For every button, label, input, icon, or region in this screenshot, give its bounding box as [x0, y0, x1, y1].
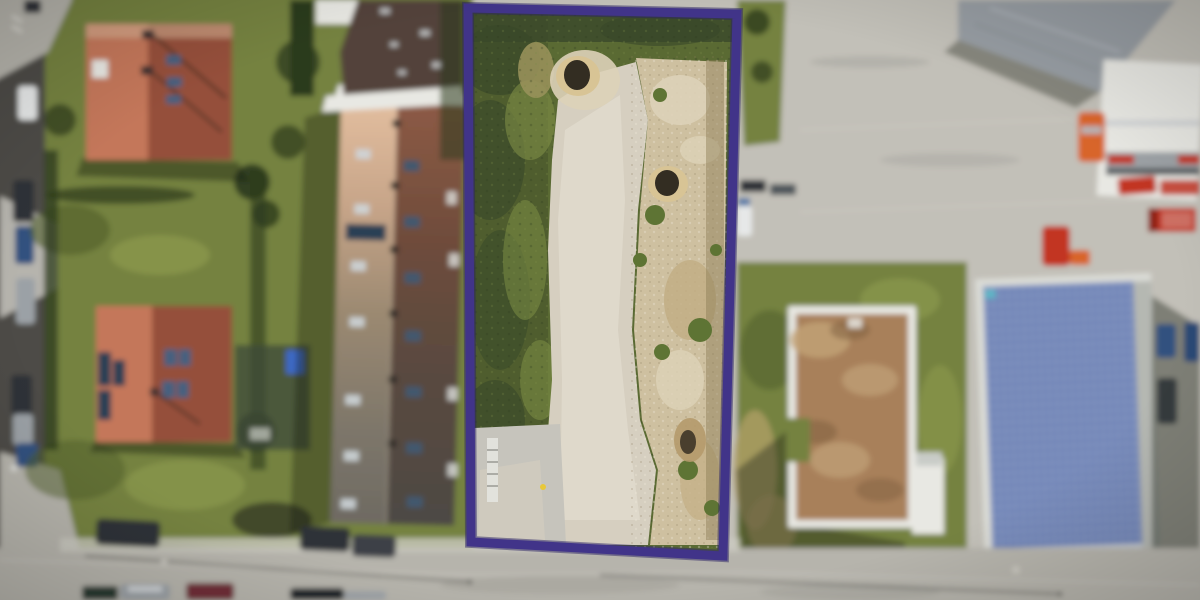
aerial-photo [0, 0, 1200, 600]
vignette [0, 0, 1200, 600]
aerial-photo-canvas [0, 0, 1200, 600]
